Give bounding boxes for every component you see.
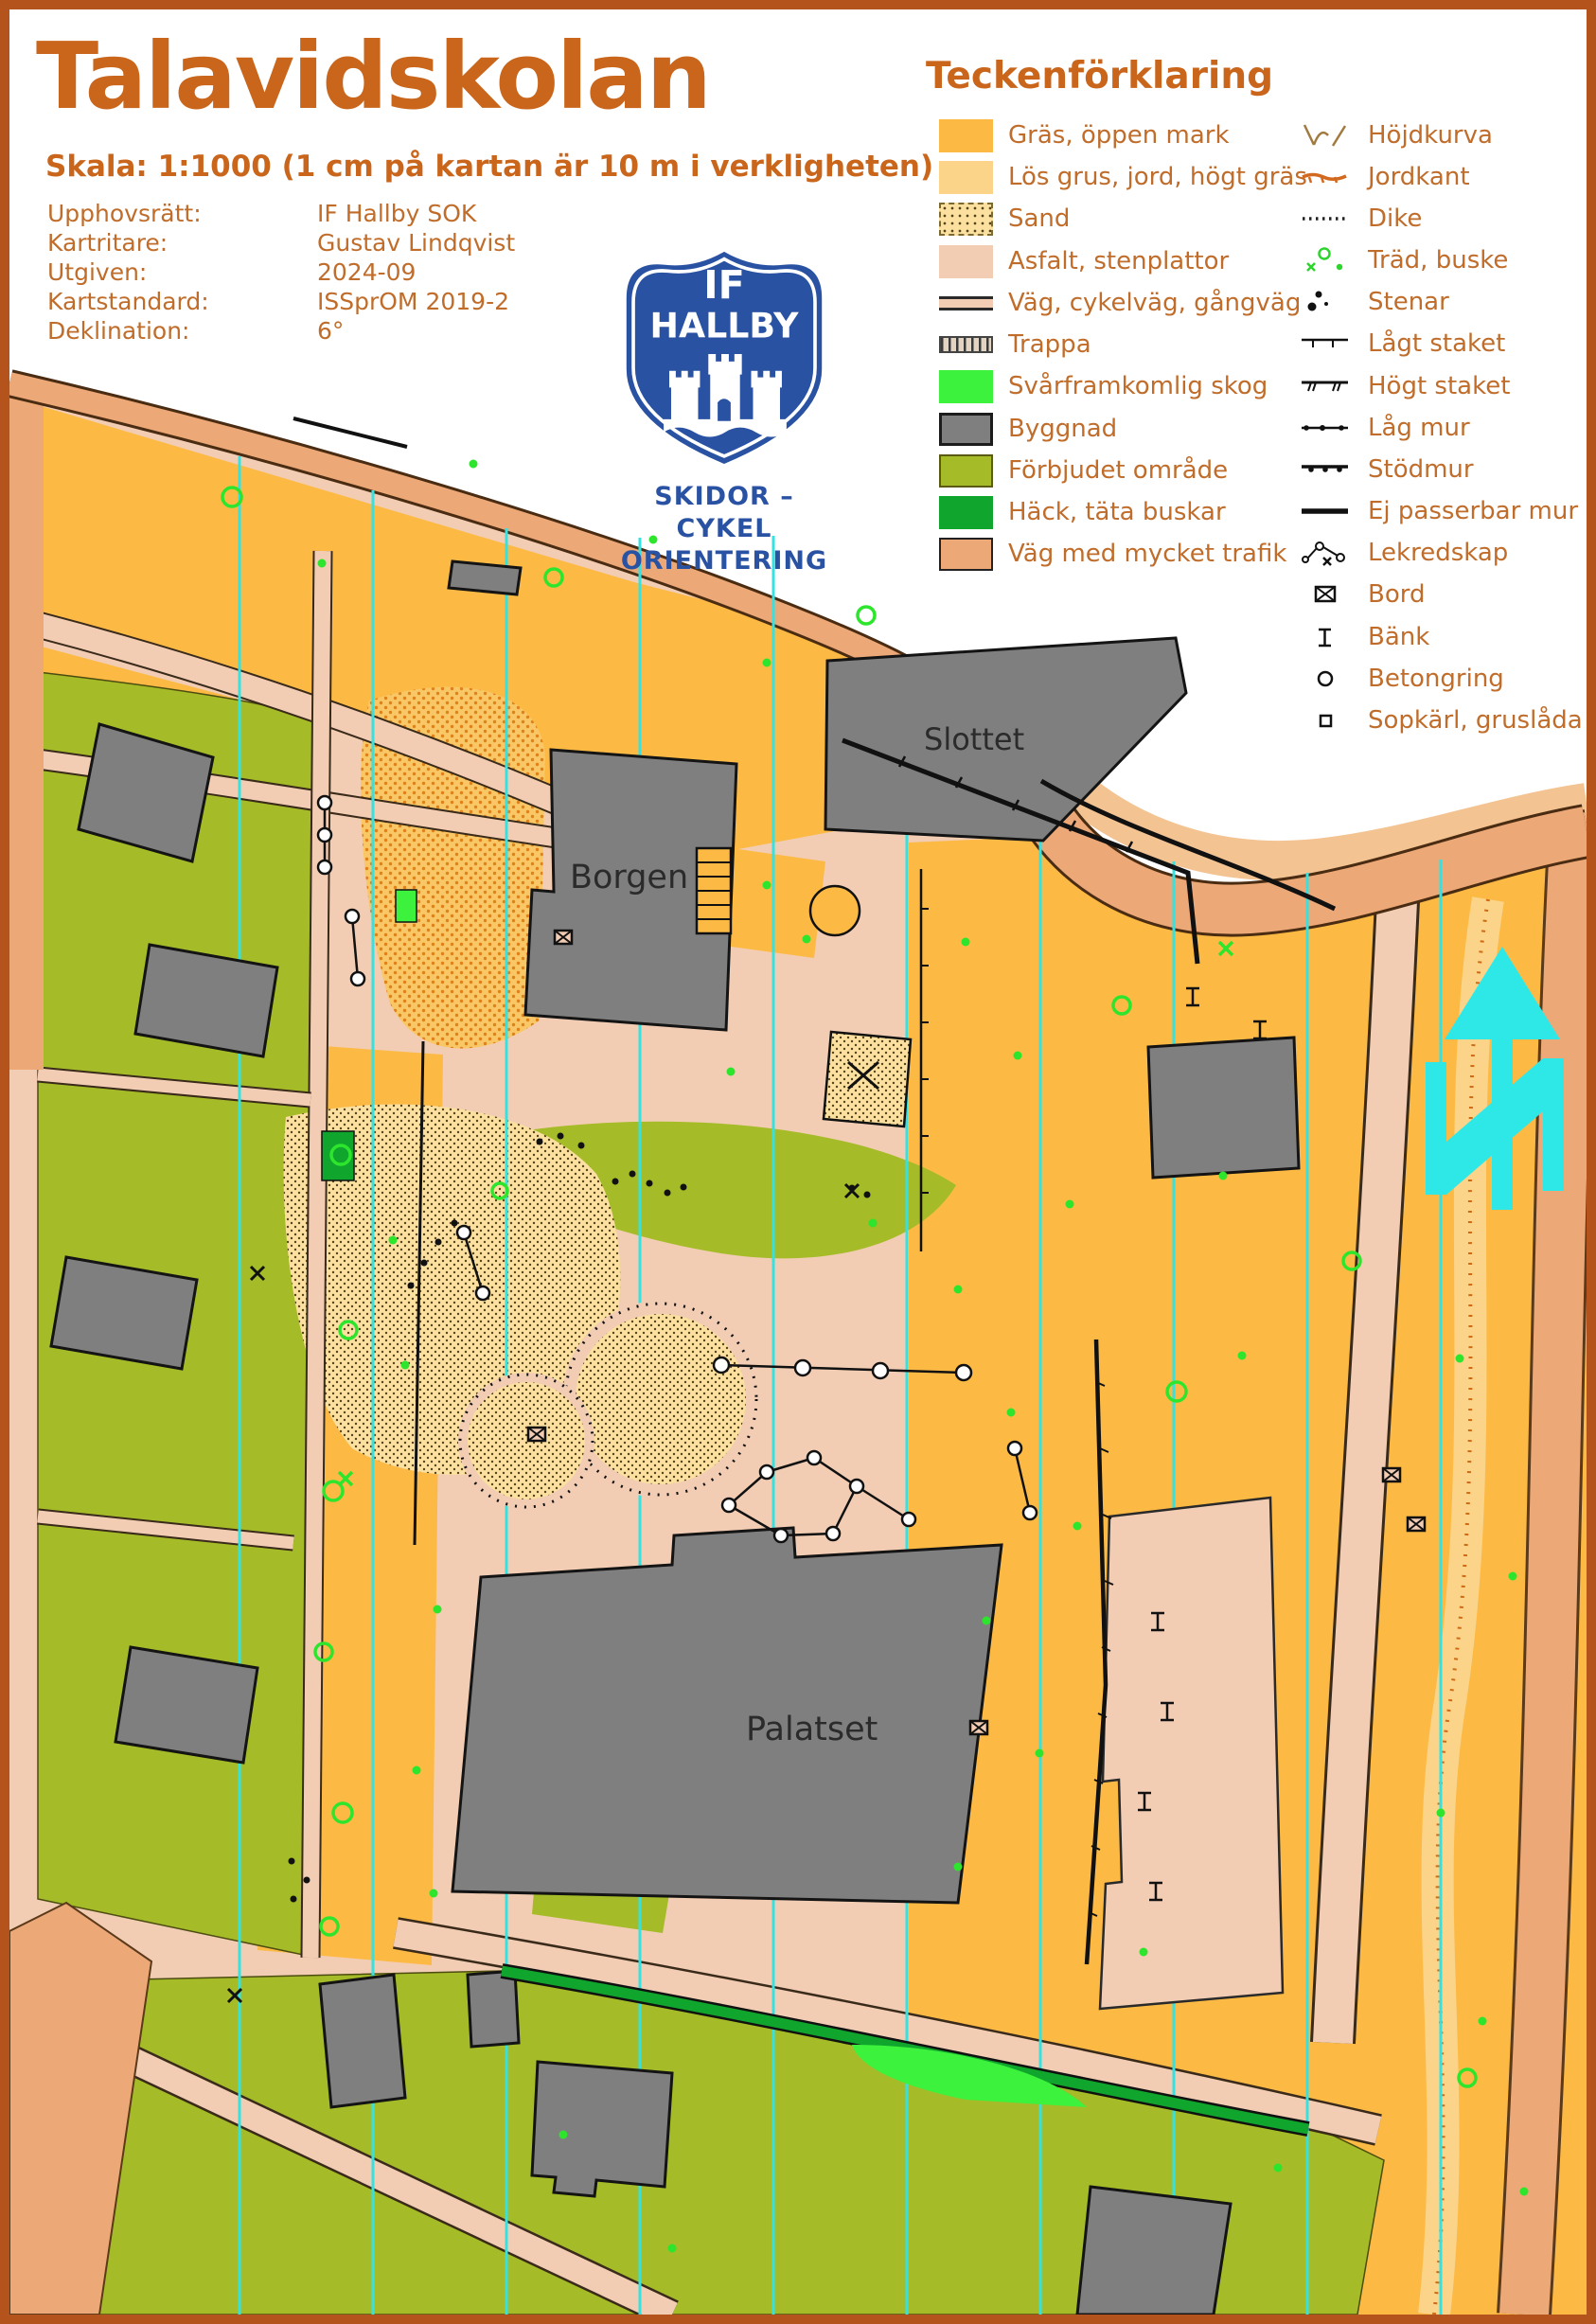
scale-line: Skala: 1:1000 (1 cm på kartan är 10 m i … — [45, 150, 933, 184]
legend-item: Gräs, öppen mark — [939, 116, 1318, 154]
orienteering-map-sheet: Slottet Borgen Palatset Talavidskolan Sk… — [0, 0, 1596, 2324]
logo-text-if: IF — [703, 262, 745, 308]
legend-item: Häck, täta buskar — [939, 493, 1318, 531]
tree-bush-icon — [1299, 244, 1353, 277]
legend-swatch-stairs — [939, 336, 993, 353]
logo-subtitle: SKIDOR – CYKEL ORIENTERING — [615, 481, 833, 577]
legend-swatch-loose-ground — [939, 161, 993, 194]
meta-row: Kartstandard:ISSprOM 2019-2 — [47, 287, 515, 316]
legend-item: Sand — [939, 200, 1318, 238]
legend-swatch-hedge — [939, 496, 993, 529]
legend-item: Byggnad — [939, 410, 1318, 448]
high-fence-icon — [1299, 370, 1353, 403]
legend-item: Höjdkurva — [1299, 116, 1596, 154]
legend-item: Väg, cykelväg, gångväg — [939, 284, 1318, 322]
legend-title: Teckenförklaring — [926, 55, 1273, 98]
legend-item: Bord — [1299, 576, 1596, 613]
meta-row: Upphovsrätt:IF Hallby SOK — [47, 199, 515, 228]
legend-swatch-path — [939, 296, 993, 310]
legend-item: Sopkärl, gruslåda — [1299, 701, 1596, 739]
page-title: Talavidskolan — [36, 23, 710, 130]
logo-text-hallby: HALLBY — [650, 305, 800, 346]
retaining-wall-icon — [1299, 453, 1353, 487]
legend-item: Jordkant — [1299, 158, 1596, 196]
concrete-ring-icon — [1299, 663, 1353, 696]
legend-item: Väg med mycket trafik — [939, 535, 1318, 573]
legend-item: Stenar — [1299, 283, 1596, 321]
building-palatset — [452, 1528, 1002, 1903]
legend-swatch-traffic-road — [939, 538, 993, 571]
label-palatset: Palatset — [746, 1711, 878, 1748]
legend-item: Asfalt, stenplattor — [939, 242, 1318, 280]
map-metadata: Upphovsrätt:IF Hallby SOK Kartritare:Gus… — [47, 199, 515, 346]
label-borgen: Borgen — [570, 859, 688, 896]
legend-swatch-thicket — [939, 370, 993, 403]
legend-swatch-grass — [939, 119, 993, 152]
legend-item: Bänk — [1299, 618, 1596, 656]
legend-swatch-forbidden — [939, 454, 993, 488]
contour-icon — [1299, 119, 1353, 152]
legend-item: Förbjudet område — [939, 452, 1318, 489]
legend-item: Svårframkomlig skog — [939, 367, 1318, 405]
legend-item: Låg mur — [1299, 409, 1596, 447]
trash-bin-icon — [1299, 704, 1353, 737]
bench-icon — [1299, 621, 1353, 654]
legend-item: Lågt staket — [1299, 325, 1596, 363]
impassable-wall-icon — [1299, 495, 1353, 528]
stones-icon — [1299, 286, 1353, 319]
club-logo: IF HALLBY SKIDOR – CYKEL ORIENTERING — [615, 240, 833, 577]
legend-item: Lös grus, jord, högt gräs — [939, 158, 1318, 196]
legend-item: Träd, buske — [1299, 241, 1596, 279]
legend-swatch-asphalt — [939, 245, 993, 278]
legend-item: Högt staket — [1299, 367, 1596, 405]
legend-swatch-sand — [939, 203, 993, 236]
meta-row: Kartritare:Gustav Lindqvist — [47, 228, 515, 257]
legend-item: Dike — [1299, 200, 1596, 238]
legend-item: Trappa — [939, 326, 1318, 364]
label-slottet: Slottet — [924, 721, 1024, 757]
legend-swatch-building — [939, 413, 993, 446]
low-wall-icon — [1299, 412, 1353, 445]
meta-row: Utgiven:2024-09 — [47, 257, 515, 287]
stairs — [697, 848, 731, 933]
ditch-icon — [1299, 203, 1353, 236]
low-fence-icon — [1299, 328, 1353, 361]
earth-bank-icon — [1299, 161, 1353, 194]
meta-row: Deklination:6° — [47, 316, 515, 346]
club-shield-icon: IF HALLBY — [615, 240, 833, 470]
legend-item: Lekredskap — [1299, 534, 1596, 572]
apartment-outline — [1100, 1498, 1283, 2009]
table-icon — [1299, 578, 1353, 612]
legend-item: Stödmur — [1299, 451, 1596, 488]
legend-item: Ej passerbar mur — [1299, 492, 1596, 530]
play-equipment-icon — [1299, 537, 1353, 570]
legend-item: Betongring — [1299, 660, 1596, 698]
